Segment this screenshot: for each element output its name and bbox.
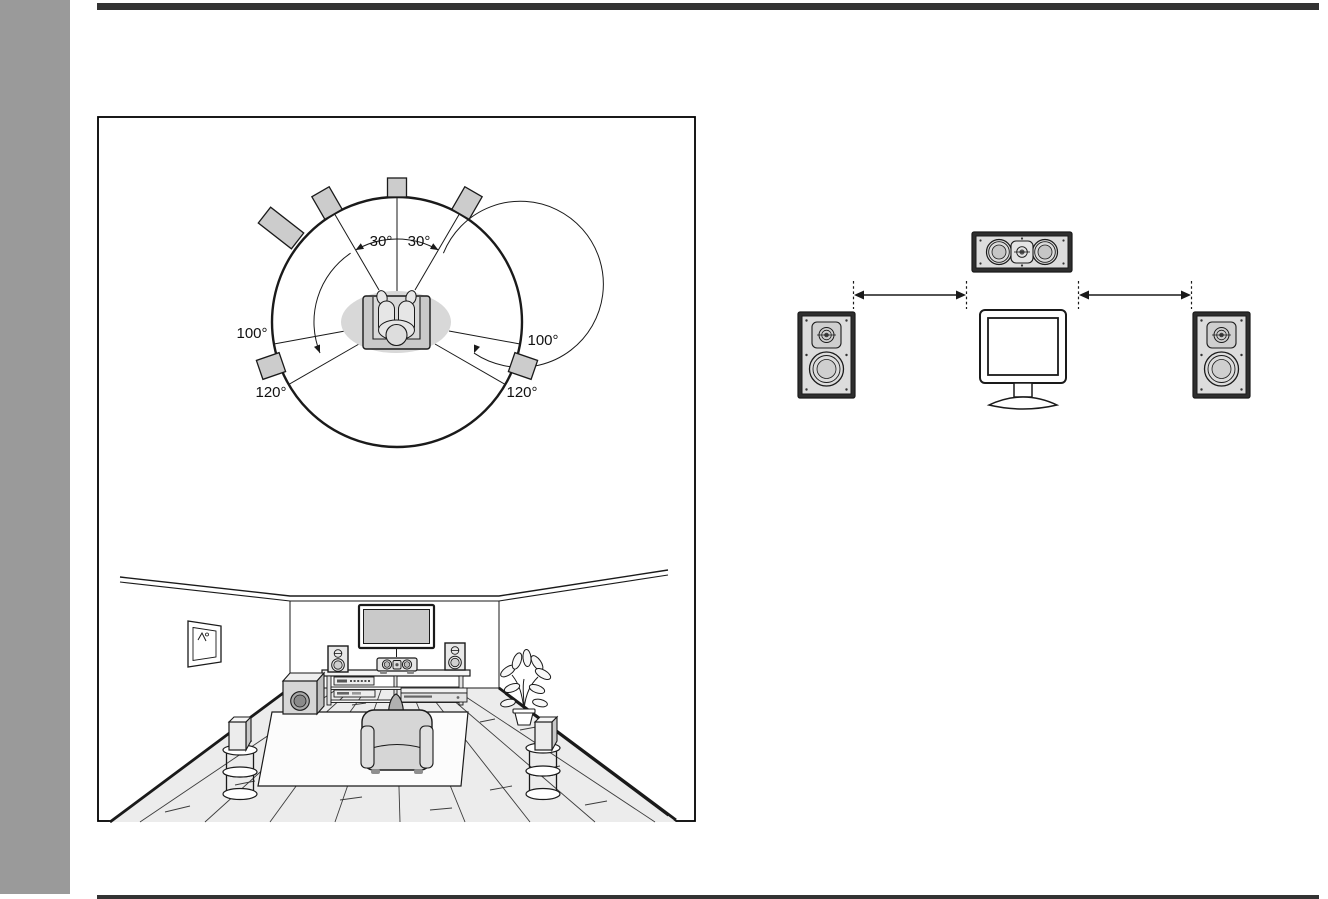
tv-monitor — [980, 310, 1066, 409]
center-speaker — [972, 232, 1072, 272]
label-back-left-angle: 120° — [255, 384, 286, 401]
figure-panel: 30° 30° 100° 100° 120° 120° — [97, 116, 697, 823]
front-speaker-spacing-diagram — [780, 220, 1270, 420]
label-back-right-angle: 120° — [506, 384, 537, 401]
top-rule — [97, 3, 1319, 10]
label-surround-left-angle: 100° — [236, 325, 267, 342]
front-right-bookshelf-speaker — [445, 643, 465, 670]
front-left-bookshelf-speaker — [328, 646, 348, 672]
dvd-player — [401, 688, 467, 702]
bottom-rule — [97, 895, 1319, 899]
label-front-left-angle: 30° — [370, 233, 393, 250]
listener-head — [386, 325, 407, 346]
equal-distance-arrows — [854, 291, 1191, 300]
manual-page: { "page": { "background": "#ffffff", "si… — [0, 0, 1328, 899]
av-receiver — [334, 677, 374, 685]
room-center-speaker — [377, 658, 417, 674]
front-right-speaker — [1193, 312, 1250, 398]
front-left-speaker — [798, 312, 855, 398]
picture-frame — [188, 621, 221, 667]
label-front-right-angle: 30° — [408, 233, 431, 250]
label-surround-right-angle: 100° — [527, 332, 558, 349]
subwoofer — [283, 673, 324, 714]
center-speaker-marker — [388, 178, 407, 197]
page-margin-gray-band — [0, 0, 70, 894]
cd-player — [334, 690, 375, 697]
